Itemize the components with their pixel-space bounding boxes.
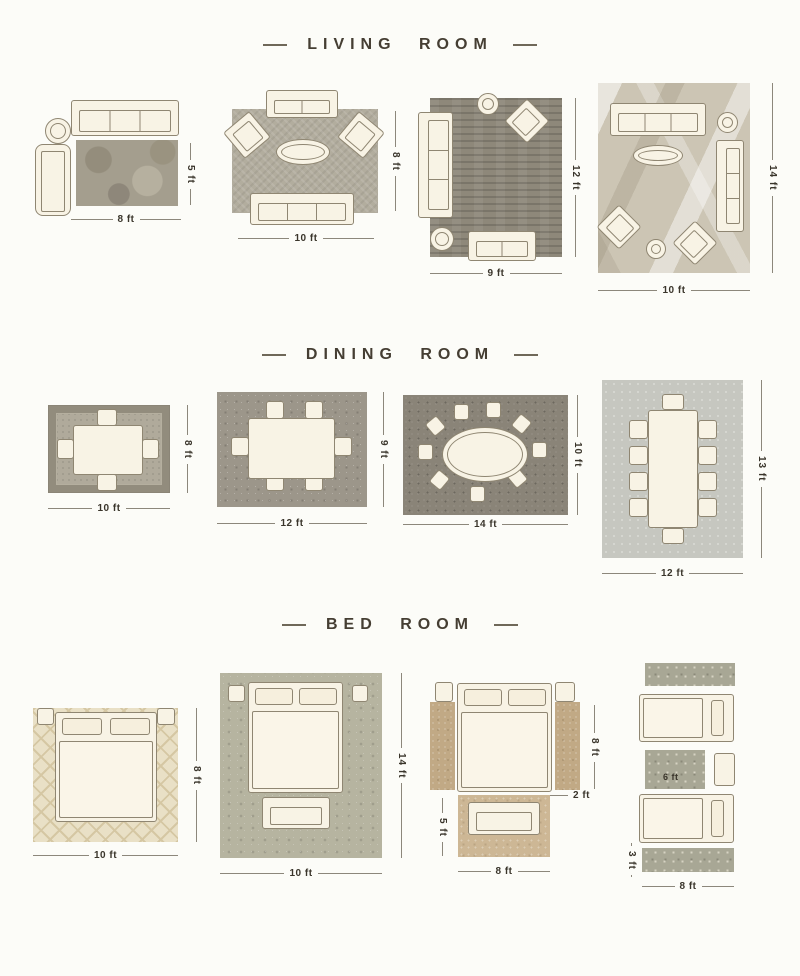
runner-rug: [430, 702, 455, 790]
runner-rug: [645, 663, 735, 686]
nightstand: [37, 708, 54, 725]
dining-table: [248, 418, 335, 479]
living-room-layout-2: 8 ft 10 ft: [230, 85, 408, 250]
bed: [457, 683, 552, 792]
section-title-dining-room: DINING ROOM: [0, 346, 800, 364]
height-label: 8 ft: [191, 766, 202, 785]
bed-room-layout-3: 8 ft 2 ft 5 ft 8 ft: [425, 662, 610, 887]
height-dimension: 13 ft: [756, 380, 767, 558]
dining-chair: [142, 439, 159, 459]
height-label: 14 ft: [767, 165, 778, 191]
blanket: [59, 741, 153, 818]
side-table: [477, 93, 499, 115]
bed-room-layout-1: 8 ft 10 ft: [22, 698, 212, 863]
side-table: [45, 118, 71, 144]
bed: [248, 682, 343, 793]
sofa: [716, 140, 744, 232]
width-label: 12 ft: [280, 518, 303, 529]
height-label: 8 ft: [390, 152, 401, 171]
dining-room-layout-2: 9 ft 12 ft: [213, 385, 396, 535]
width-label: 10 ft: [289, 868, 312, 879]
runner-height-label: 8 ft: [589, 738, 600, 757]
dining-chair: [57, 439, 74, 459]
blanket: [643, 698, 703, 738]
height-dimension: 8 ft: [182, 405, 193, 493]
dining-chair: [698, 446, 717, 465]
width-label: 8 ft: [496, 866, 513, 877]
dining-table: [73, 425, 143, 475]
dimension-line: [126, 508, 170, 509]
runner-height-dimension: 8 ft: [589, 705, 600, 789]
dimension-line: [196, 790, 197, 843]
width-label: 9 ft: [488, 268, 505, 279]
width-dimension: 8 ft: [458, 866, 550, 877]
bed: [639, 694, 734, 742]
height-label: 12 ft: [570, 165, 581, 191]
width-label: 14 ft: [474, 519, 497, 530]
foot-rug-height-label: 5 ft: [437, 818, 448, 837]
foot-rug-height-dimension: 5 ft: [437, 798, 448, 856]
sofa: [266, 90, 338, 118]
dimension-line: [401, 783, 402, 858]
dimension-line: [602, 573, 656, 574]
rug: [76, 140, 178, 206]
dining-chair: [629, 446, 648, 465]
dimension-line: [196, 708, 197, 761]
dimension-line: [140, 219, 182, 220]
dining-room-layout-4: 13 ft 12 ft: [598, 375, 773, 585]
height-dimension: 5 ft: [185, 143, 196, 205]
living-room-layout-3: 12 ft 9 ft: [415, 85, 593, 290]
dimension-line: [575, 98, 576, 160]
height-dimension: 10 ft: [572, 395, 583, 515]
pillow: [255, 688, 293, 705]
width-dimension: 10 ft: [598, 285, 750, 296]
dining-table: [442, 427, 528, 482]
sofa: [610, 103, 706, 136]
dimension-line: [577, 473, 578, 515]
width-dimension: 14 ft: [403, 519, 568, 530]
dining-chair: [629, 498, 648, 517]
dining-chair: [97, 409, 117, 426]
dimension-line: [309, 523, 367, 524]
runner-rug: [555, 702, 580, 790]
dining-chair: [698, 420, 717, 439]
dining-chair: [532, 442, 547, 458]
width-dimension: 8 ft: [71, 214, 181, 225]
rug-size-guide: LIVING ROOM 5 ft 8 ft 8 ft: [0, 0, 800, 976]
dimension-line: [691, 290, 750, 291]
dimension-line: [594, 762, 595, 790]
dimension-line: [401, 673, 402, 748]
bench: [262, 797, 330, 829]
dimension-line: [642, 886, 675, 887]
dimension-line: [187, 464, 188, 494]
runner-height-dimension: 3 ft: [626, 843, 637, 877]
width-dimension: 10 ft: [48, 503, 170, 514]
nightstand: [714, 753, 735, 786]
dining-chair: [662, 394, 684, 410]
dimension-line: [395, 111, 396, 147]
dining-chair: [486, 402, 501, 418]
dimension-line: [510, 273, 563, 274]
dining-chair: [454, 404, 469, 420]
height-label: 5 ft: [185, 165, 196, 184]
dimension-line: [318, 873, 382, 874]
dimension-line: [631, 875, 632, 878]
title-dash: [263, 44, 287, 46]
title-dash: [514, 354, 538, 356]
blanket: [461, 712, 548, 788]
pillow: [508, 689, 546, 706]
pillow: [711, 800, 724, 837]
living-room-layout-4: 14 ft 10 ft: [595, 75, 790, 300]
bench: [468, 802, 540, 835]
dimension-line: [33, 855, 89, 856]
width-dimension: 10 ft: [238, 233, 374, 244]
pillow: [464, 689, 502, 706]
dimension-line: [122, 855, 178, 856]
dimension-line: [238, 238, 289, 239]
dimension-line: [458, 871, 491, 872]
width-label: 12 ft: [661, 568, 684, 579]
title-dash: [282, 624, 306, 626]
dimension-line: [48, 508, 92, 509]
runner-width-label: 2 ft: [573, 790, 590, 801]
height-dimension: 14 ft: [767, 83, 778, 273]
pillow: [62, 718, 102, 735]
dimension-line: [430, 273, 483, 274]
section-title-text: BED ROOM: [326, 616, 474, 634]
coffee-table: [633, 145, 683, 166]
dimension-line: [689, 573, 743, 574]
width-label: 10 ft: [94, 850, 117, 861]
dimension-line: [772, 83, 773, 160]
runner-width-dimension: 2 ft: [550, 790, 590, 801]
pillow: [299, 688, 337, 705]
height-dimension: 14 ft: [396, 673, 407, 858]
dimension-line: [190, 143, 191, 160]
height-label: 13 ft: [756, 456, 767, 482]
dimension-line: [442, 798, 443, 813]
nightstand: [352, 685, 368, 702]
dimension-line: [383, 464, 384, 507]
title-dash: [494, 624, 518, 626]
dining-chair: [334, 437, 352, 456]
pillow: [711, 700, 724, 736]
runner-rug: [642, 848, 734, 872]
dimension-line: [190, 189, 191, 206]
width-label: 10 ft: [97, 503, 120, 514]
sofa: [250, 193, 354, 225]
chaise-chair: [35, 144, 71, 216]
dimension-line: [577, 395, 578, 437]
dining-chair: [629, 472, 648, 491]
sofa: [71, 100, 179, 136]
blanket: [643, 798, 703, 839]
dining-table: [648, 410, 698, 528]
dimension-line: [502, 524, 568, 525]
dimension-line: [575, 195, 576, 257]
nightstand: [555, 682, 575, 702]
width-dimension: 12 ft: [602, 568, 743, 579]
loveseat: [468, 231, 536, 261]
dimension-line: [550, 795, 568, 796]
dining-chair: [418, 444, 433, 460]
dimension-line: [395, 176, 396, 212]
ottoman: [430, 227, 454, 251]
blanket: [252, 711, 339, 789]
height-label: 9 ft: [378, 440, 389, 459]
dining-chair: [698, 472, 717, 491]
dining-chair: [266, 401, 284, 419]
dimension-line: [71, 219, 113, 220]
width-label: 8 ft: [118, 214, 135, 225]
width-label: 10 ft: [662, 285, 685, 296]
dining-chair: [231, 437, 249, 456]
coffee-table: [276, 139, 330, 165]
nightstand: [435, 682, 453, 702]
height-dimension: 8 ft: [390, 111, 401, 211]
width-label: 8 ft: [680, 881, 697, 892]
dining-room-layout-3: 10 ft 14 ft: [398, 388, 581, 533]
height-dimension: 8 ft: [191, 708, 202, 842]
dining-chair: [97, 474, 117, 491]
runner-rug: 6 ft: [645, 750, 705, 789]
dining-chair: [470, 486, 485, 502]
mid-rug-width-label: 6 ft: [663, 772, 679, 782]
section-title-text: DINING ROOM: [306, 346, 494, 364]
nightstand: [157, 708, 175, 725]
dimension-line: [323, 238, 374, 239]
section-title-bed-room: BED ROOM: [0, 616, 800, 634]
section-title-text: LIVING ROOM: [307, 36, 493, 54]
height-label: 10 ft: [572, 442, 583, 468]
dining-chair: [305, 401, 323, 419]
title-dash: [262, 354, 286, 356]
title-dash: [513, 44, 537, 46]
dimension-line: [594, 705, 595, 733]
height-dimension: 12 ft: [570, 98, 581, 257]
runner-height-label: 3 ft: [626, 851, 637, 870]
dimension-line: [761, 380, 762, 451]
width-dimension: 9 ft: [430, 268, 562, 279]
dimension-line: [403, 524, 469, 525]
height-dimension: 9 ft: [378, 392, 389, 507]
dimension-line: [772, 196, 773, 273]
dining-chair: [629, 420, 648, 439]
height-label: 8 ft: [182, 440, 193, 459]
bed: [55, 712, 157, 822]
dimension-line: [518, 871, 551, 872]
dimension-line: [383, 392, 384, 435]
width-dimension: 8 ft: [642, 881, 734, 892]
dining-chair: [662, 528, 684, 544]
dimension-line: [217, 523, 275, 524]
section-title-living-room: LIVING ROOM: [0, 36, 800, 54]
width-label: 10 ft: [294, 233, 317, 244]
bed-room-layout-2: 14 ft 10 ft: [215, 665, 410, 883]
dimension-line: [442, 842, 443, 857]
width-dimension: 10 ft: [33, 850, 178, 861]
dimension-line: [761, 487, 762, 558]
nightstand: [228, 685, 245, 702]
dimension-line: [220, 873, 284, 874]
dimension-line: [631, 843, 632, 846]
side-table: [646, 239, 666, 259]
bed-room-layout-4: 6 ft 3 ft 8 ft: [618, 655, 796, 895]
width-dimension: 10 ft: [220, 868, 382, 879]
bed: [639, 794, 734, 843]
height-label: 14 ft: [396, 753, 407, 779]
pillow: [110, 718, 150, 735]
side-table: [717, 112, 738, 133]
dining-room-layout-1: 8 ft 10 ft: [40, 395, 215, 520]
dimension-line: [598, 290, 657, 291]
width-dimension: 12 ft: [217, 518, 367, 529]
dimension-line: [187, 405, 188, 435]
dimension-line: [702, 886, 735, 887]
sofa: [418, 112, 453, 218]
dining-chair: [698, 498, 717, 517]
living-room-layout-1: 5 ft 8 ft: [25, 90, 215, 240]
